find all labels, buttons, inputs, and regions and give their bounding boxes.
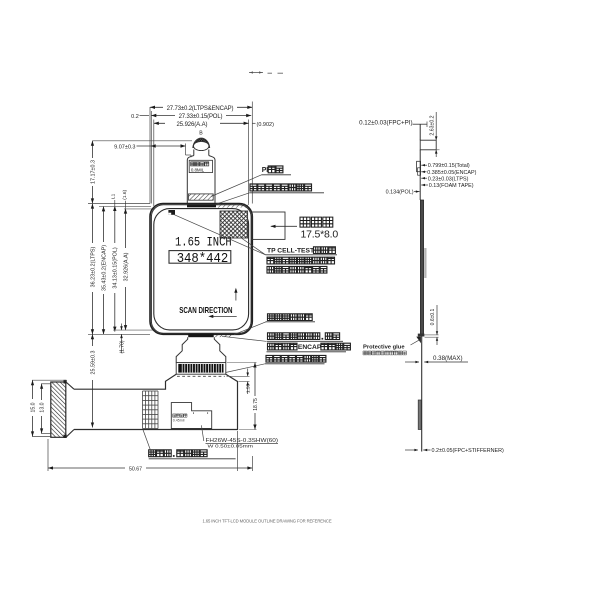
svg-text:18.75: 18.75 — [253, 398, 259, 411]
svg-text:TP CELL-TEST: TP CELL-TEST — [267, 248, 315, 255]
svg-text:0.2±0.05(FPC+STIFFERNER): 0.2±0.05(FPC+STIFFERNER) — [432, 448, 505, 454]
svg-text:15.0: 15.0 — [30, 402, 36, 412]
svg-text:(0.902): (0.902) — [257, 122, 275, 128]
svg-text:1.65 INCH TFT-LCD MODULE OUTLI: 1.65 INCH TFT-LCD MODULE OUTLINE DRAWING… — [202, 518, 331, 523]
svg-text:0.799±0.15(Total): 0.799±0.15(Total) — [428, 163, 470, 169]
svg-text:0.134(POL): 0.134(POL) — [386, 190, 414, 196]
svg-text:0.6±0.1: 0.6±0.1 — [430, 308, 436, 325]
svg-text:25.926(A.A): 25.926(A.A) — [177, 122, 208, 128]
svg-text:9.07±0.3: 9.07±0.3 — [114, 145, 135, 151]
svg-text:0.12±0.03(FPC+PI): 0.12±0.03(FPC+PI) — [359, 120, 412, 127]
svg-text:17.17±0.3: 17.17±0.3 — [90, 160, 96, 184]
svg-text:13.0: 13.0 — [40, 402, 46, 412]
svg-text:0.13(FOAM TAPE): 0.13(FOAM TAPE) — [429, 183, 474, 189]
svg-text:0.2: 0.2 — [131, 114, 139, 120]
svg-text:25.59±0.3: 25.59±0.3 — [90, 351, 96, 375]
svg-text:36.23±0.2(LTPS): 36.23±0.2(LTPS) — [90, 246, 96, 287]
svg-text:(1.70): (1.70) — [119, 340, 125, 353]
svg-text:2.63±0.2: 2.63±0.2 — [430, 115, 436, 135]
svg-text:27.33±0.15(POL): 27.33±0.15(POL) — [179, 114, 223, 120]
svg-text:0.8MIL: 0.8MIL — [191, 167, 205, 172]
svg-text:B: B — [199, 131, 203, 137]
svg-text:(1.6): (1.6) — [122, 189, 128, 199]
svg-text:0.385±0.05(ENCAP): 0.385±0.05(ENCAP) — [427, 170, 476, 176]
svg-text:SCAN DIRECTION: SCAN DIRECTION — [179, 306, 232, 315]
svg-text:17.5*8.0: 17.5*8.0 — [301, 229, 339, 241]
svg-text:35.43±0.2(ENCAP): 35.43±0.2(ENCAP) — [101, 245, 107, 291]
svg-text:1.65 INCH: 1.65 INCH — [175, 235, 232, 249]
svg-text:348*442: 348*442 — [177, 251, 229, 267]
svg-text:Protective glue: Protective glue — [363, 344, 405, 350]
svg-text:0.38(MAX): 0.38(MAX) — [433, 355, 463, 362]
svg-text:32.926(A.A): 32.926(A.A) — [123, 252, 129, 281]
svg-text:50.67: 50.67 — [129, 466, 142, 472]
svg-text:0.45mil: 0.45mil — [173, 419, 185, 423]
svg-text:PI: PI — [262, 167, 269, 174]
svg-text:W 0.50±0.05mm: W 0.50±0.05mm — [208, 443, 254, 449]
svg-text:27.73±0.2(LTPS&ENCAP): 27.73±0.2(LTPS&ENCAP) — [167, 106, 234, 112]
svg-text:ENCAP: ENCAP — [298, 344, 322, 351]
svg-text:34.13±0.15(POL): 34.13±0.15(POL) — [113, 247, 119, 289]
svg-text:1.58: 1.58 — [246, 384, 251, 394]
svg-text:0.23±0.03(LTPS): 0.23±0.03(LTPS) — [428, 176, 469, 182]
svg-text:L1: L1 — [111, 193, 117, 199]
